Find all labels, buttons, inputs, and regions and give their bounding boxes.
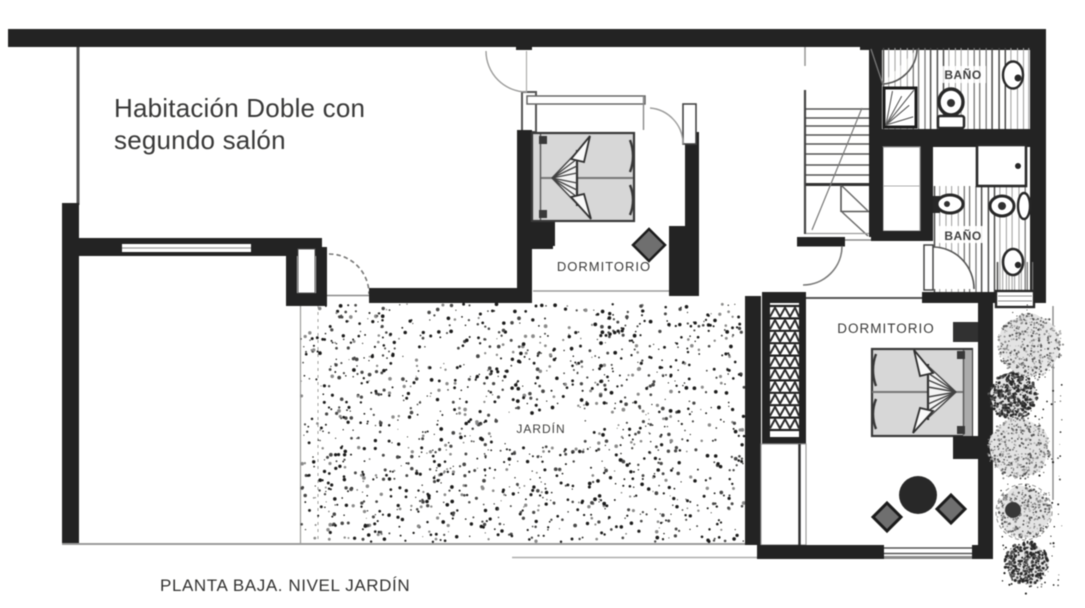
svg-text:DORMITORIO: DORMITORIO (837, 321, 935, 336)
svg-text:DORMITORIO: DORMITORIO (557, 259, 651, 274)
svg-text:segundo salón: segundo salón (114, 125, 286, 155)
svg-text:BAÑO: BAÑO (944, 228, 981, 243)
svg-text:BAÑO: BAÑO (944, 67, 981, 82)
svg-text:JARDÍN: JARDÍN (516, 421, 565, 436)
svg-text:Habitación Doble con: Habitación Doble con (114, 93, 365, 123)
svg-text:PLANTA BAJA. NIVEL JARDÍN: PLANTA BAJA. NIVEL JARDÍN (160, 576, 410, 595)
